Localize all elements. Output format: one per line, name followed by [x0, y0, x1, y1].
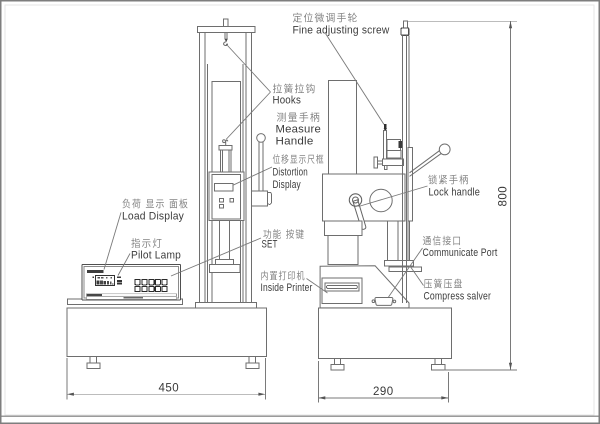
svg-text:Display: Display: [273, 179, 302, 191]
svg-text:内置打印机: 内置打印机: [261, 270, 306, 283]
svg-text:Compress salver: Compress salver: [424, 291, 492, 303]
svg-text:SET: SET: [262, 239, 278, 251]
svg-text:Inside Printer: Inside Printer: [261, 282, 313, 294]
svg-text:负荷 显示 面板: 负荷 显示 面板: [122, 198, 189, 211]
svg-text:位移显示尺框: 位移显示尺框: [273, 153, 325, 166]
svg-text:800: 800: [498, 186, 510, 207]
svg-text:Fine adjusting screw: Fine adjusting screw: [293, 25, 390, 37]
svg-text:Lock handle: Lock handle: [429, 187, 481, 199]
svg-text:通信接口: 通信接口: [423, 235, 463, 248]
svg-text:压簧压盘: 压簧压盘: [424, 278, 464, 291]
svg-text:Hooks: Hooks: [273, 95, 302, 107]
svg-text:测量手柄: 测量手柄: [277, 111, 322, 124]
svg-text:Distortion: Distortion: [273, 167, 308, 179]
svg-text:290: 290: [373, 386, 394, 398]
svg-text:Handle: Handle: [276, 136, 314, 148]
svg-text:锁紧手柄: 锁紧手柄: [428, 174, 470, 187]
svg-text:450: 450: [159, 383, 180, 395]
svg-text:Measure: Measure: [276, 124, 322, 136]
svg-text:Load Display: Load Display: [122, 211, 184, 223]
svg-text:指示灯: 指示灯: [131, 237, 163, 250]
svg-text:定位微调手轮: 定位微调手轮: [293, 12, 359, 25]
svg-text:Communicate Port: Communicate Port: [423, 247, 498, 259]
svg-text:Pilot Lamp: Pilot Lamp: [131, 250, 181, 262]
